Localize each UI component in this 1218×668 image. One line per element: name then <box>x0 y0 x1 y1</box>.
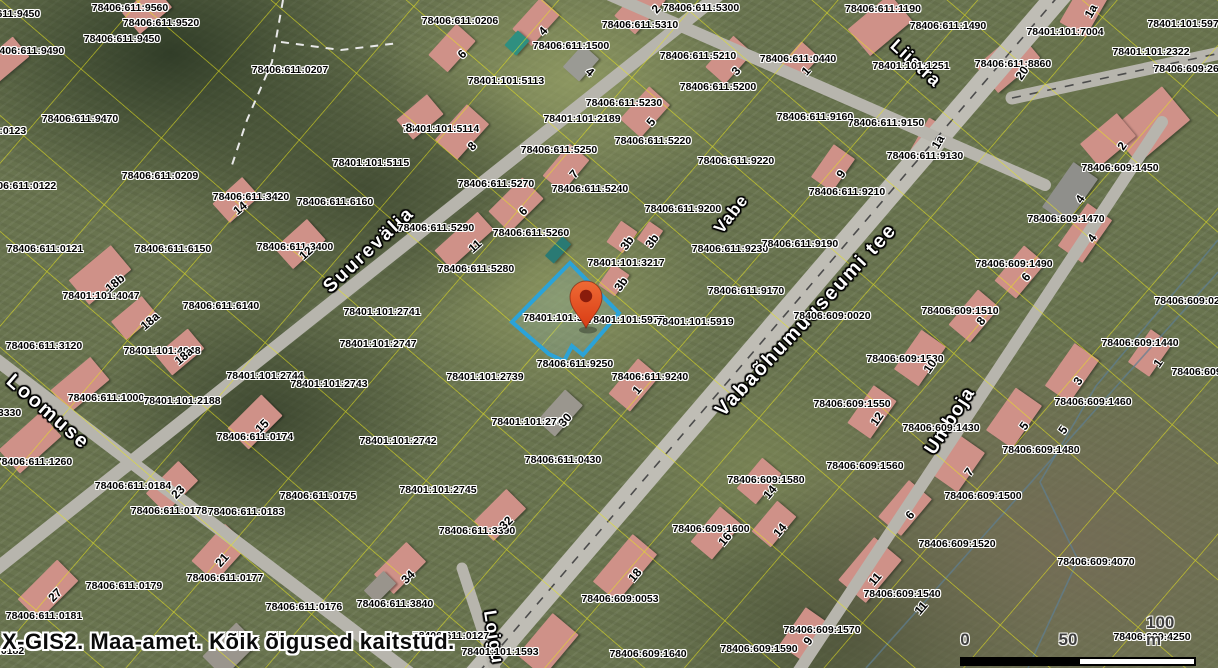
aerial-imagery <box>0 0 1218 668</box>
copyright-watermark: X-GIS2. Maa-amet. Kõik õigused kaitstud. <box>2 629 455 655</box>
scale-bar-segment-white <box>1078 657 1196 666</box>
scale-label-100: 100 m <box>1146 614 1194 648</box>
scale-bar-segment-black <box>960 657 1078 666</box>
map-canvas[interactable]: SuureväljaVabeVabaõhumuuseumi teeLoomuse… <box>0 0 1218 668</box>
scale-label-50: 50 <box>1059 631 1078 648</box>
scale-label-0: 0 <box>960 631 969 648</box>
